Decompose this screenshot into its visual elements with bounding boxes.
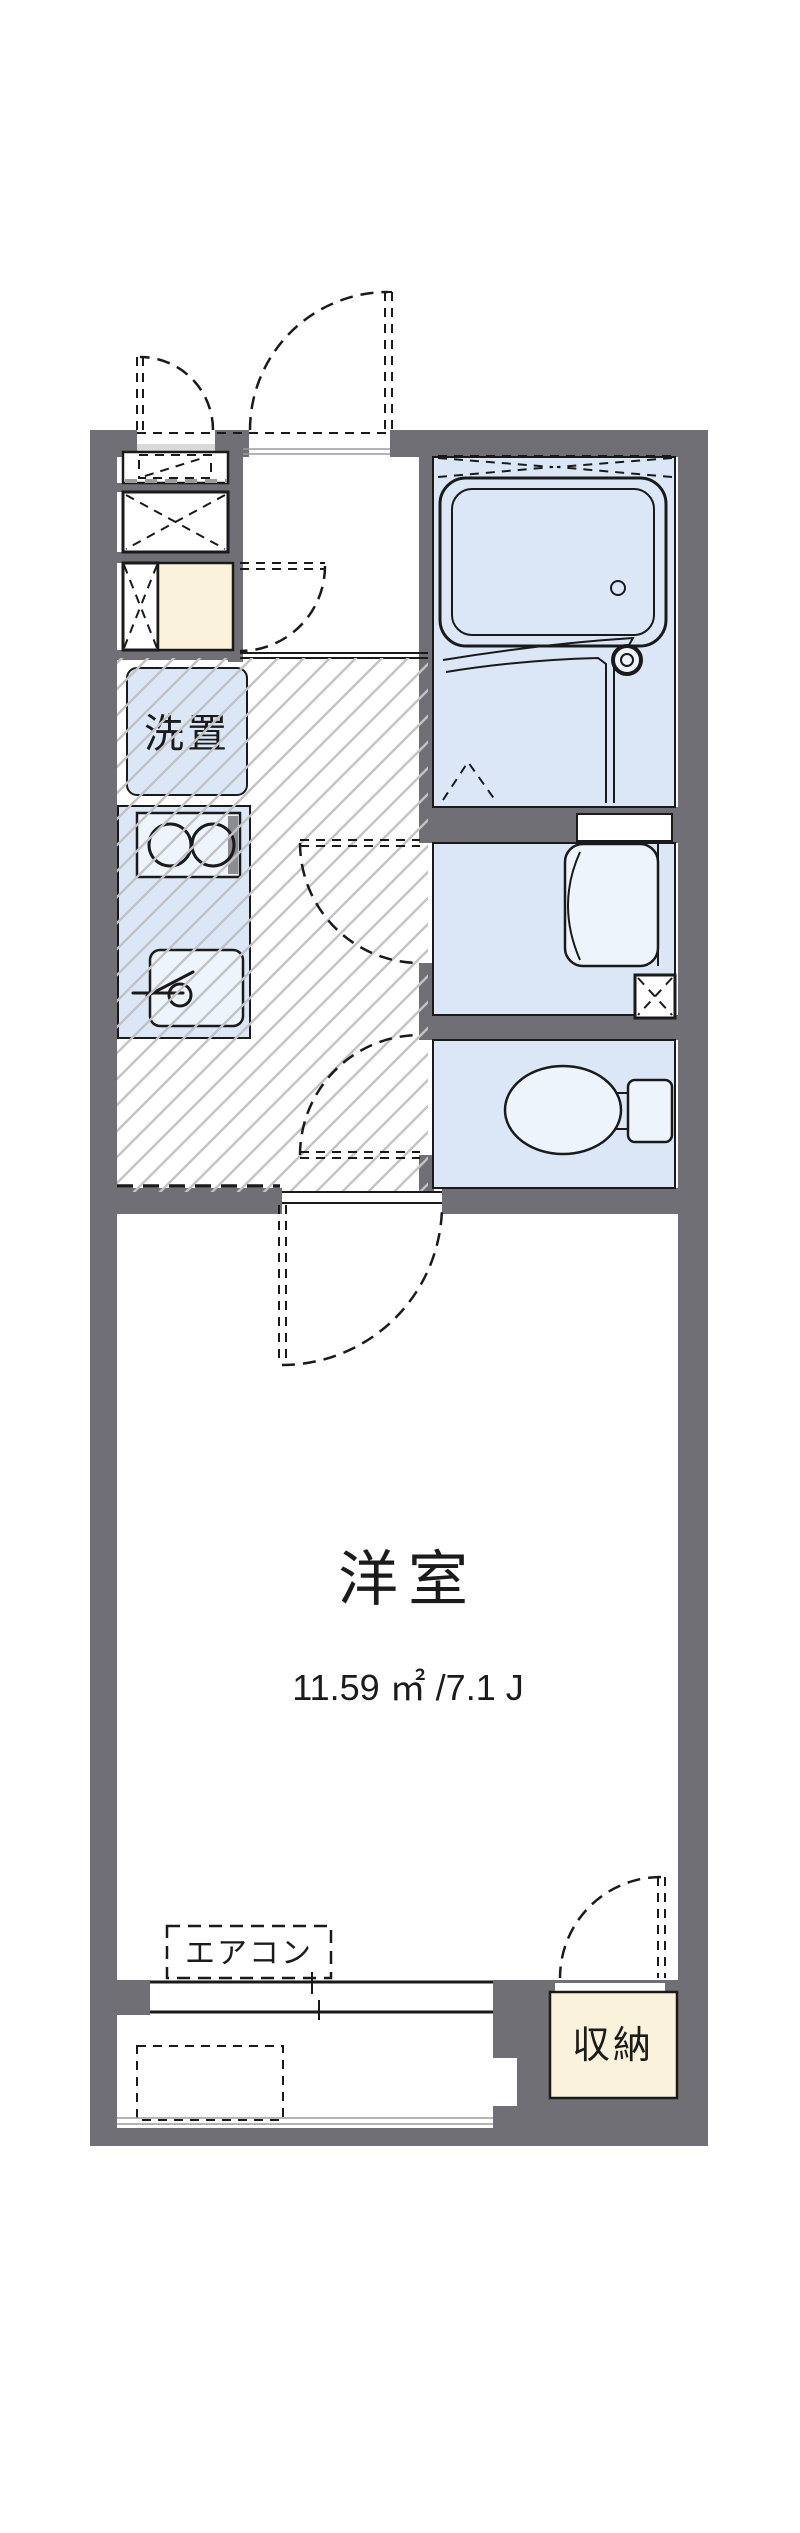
hall-door-swing xyxy=(240,563,325,651)
closet-door-swing xyxy=(560,1877,665,1978)
shoe-cabinet xyxy=(123,492,228,552)
main-room-area: 11.59 ㎡ /7.1 J xyxy=(292,1667,523,1708)
refrigerator-space xyxy=(123,563,233,650)
aircon-label: エアコン xyxy=(185,1937,313,1970)
porch-storage-door-swing xyxy=(137,357,213,430)
entrance-porch xyxy=(123,430,390,483)
kitchen-corridor-hatch xyxy=(117,658,428,1192)
bath-faucet xyxy=(613,646,641,674)
main-room-label: 洋室 xyxy=(338,1546,478,1613)
floor-plan-drawing: 洗置 xyxy=(0,0,800,2533)
storage-label: 収納 xyxy=(572,2025,654,2067)
air-conditioner-position: エアコン xyxy=(167,1926,331,1978)
pipe-space xyxy=(635,975,675,1018)
main-room-doorway xyxy=(282,1192,442,1203)
washbasin xyxy=(565,844,658,966)
entrance-door-swing xyxy=(250,292,392,430)
toilet xyxy=(505,1066,672,1154)
balcony xyxy=(117,2046,493,2124)
floor-plan-page: 洗置 xyxy=(0,0,800,2533)
bathroom-floor xyxy=(433,457,675,807)
main-room-door-swing xyxy=(279,1205,442,1365)
